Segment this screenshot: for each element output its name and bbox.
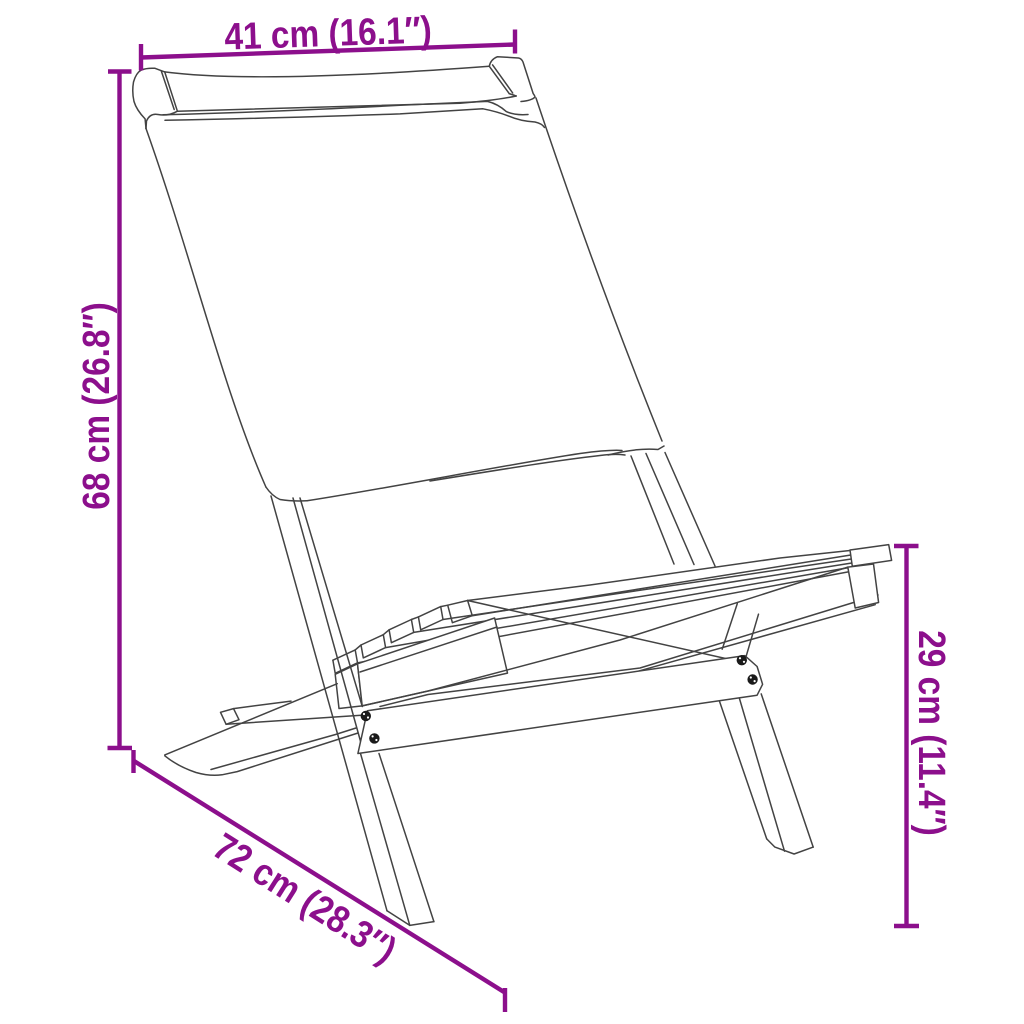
svg-text:29 cm (11.4″): 29 cm (11.4″) bbox=[911, 630, 953, 836]
svg-text:41 cm (16.1″): 41 cm (16.1″) bbox=[224, 8, 433, 58]
svg-text:68 cm (26.8″): 68 cm (26.8″) bbox=[75, 302, 117, 509]
